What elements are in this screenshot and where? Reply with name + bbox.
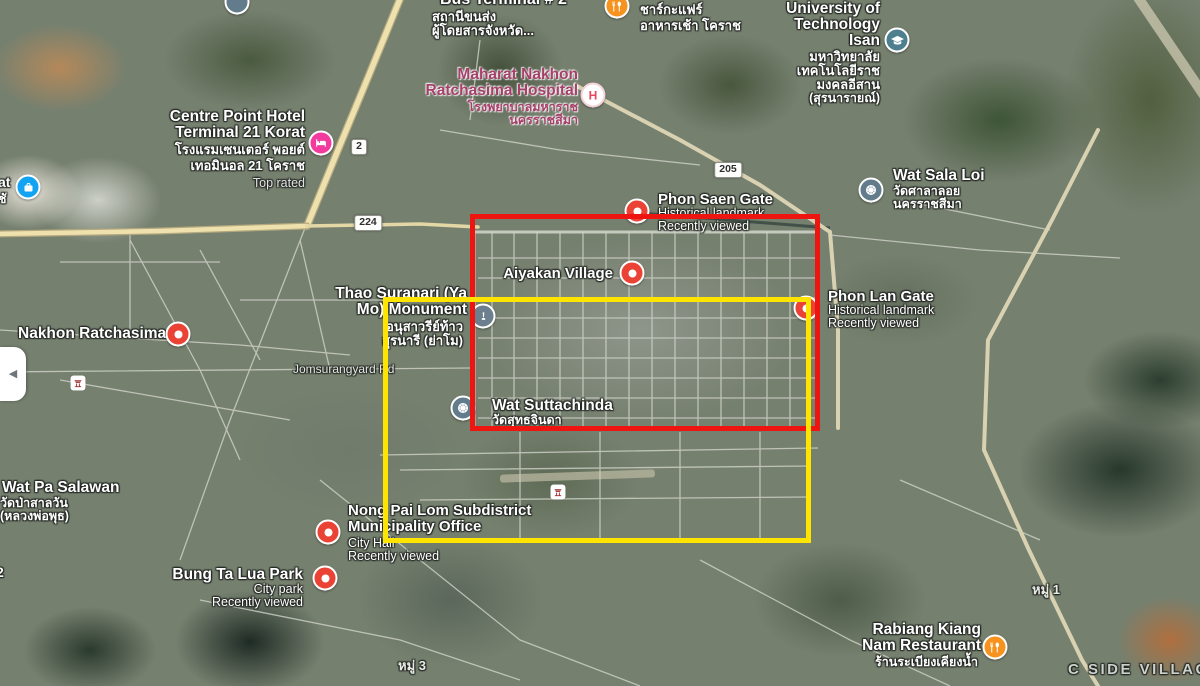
chakafare-thai2: อาหารเช้า โคราช <box>640 19 741 33</box>
university-thai-4: (สุรนารายณ์) <box>809 92 880 106</box>
shrine-icon[interactable] <box>71 376 86 391</box>
restaurant-icon <box>605 0 630 19</box>
university-pin[interactable] <box>885 28 910 53</box>
restaurant-icon <box>983 635 1008 660</box>
edge-fragment-2: 2 <box>0 565 4 580</box>
rabiang-restaurant-pin[interactable] <box>983 635 1008 660</box>
rabiang-label-1: Rabiang Kiang <box>872 621 981 638</box>
wat-sala-loi-pin[interactable] <box>859 178 884 203</box>
wat-pa-salawan-label: Wat Pa Salawan <box>2 479 119 496</box>
nakhon-ratchasima-pin[interactable] <box>166 322 191 347</box>
edge-fragment-at: at <box>0 175 10 190</box>
centre-point-label-1: Centre Point Hotel <box>170 108 305 125</box>
shopping-mall-pin[interactable] <box>16 175 41 200</box>
phon-lan-gate-status: Recently viewed <box>828 317 919 331</box>
bus-terminal-thai2: ผู้โดยสารจังหวัด... <box>432 24 534 38</box>
yellow-annotation-rectangle <box>383 297 811 543</box>
nakhon-ratchasima-label: Nakhon Ratchasima <box>18 325 166 342</box>
maharat-hospital-label-2: Ratchasima Hospital <box>426 82 578 99</box>
saved-place-icon <box>316 520 341 545</box>
centre-point-hotel-pin[interactable] <box>309 131 334 156</box>
maharat-hospital-pin[interactable]: H <box>581 83 606 108</box>
nong-pai-lom-status: Recently viewed <box>348 550 439 564</box>
saved-place-icon <box>313 566 338 591</box>
bus-terminal-pin[interactable] <box>225 0 250 15</box>
route-2-shield: 2 <box>351 139 367 155</box>
university-label-3: Isan <box>849 32 880 49</box>
rabiang-thai: ร้านระเบียงเคียงน้ำ <box>875 656 978 670</box>
centre-point-label-2: Terminal 21 Korat <box>175 124 305 141</box>
wat-sala-loi-thai-2: นครราชสีมา <box>893 198 962 212</box>
chakafare-thai1: ชาร์กะแฟร์ <box>640 3 703 17</box>
route-205-shield: 205 <box>714 162 742 178</box>
hospital-h-icon: H <box>581 83 606 108</box>
university-label-1: University of <box>786 0 880 17</box>
wat-pa-salawan-thai-2: (หลวงพ่อพุธ) <box>0 510 69 524</box>
bus-icon <box>225 0 250 15</box>
bung-ta-lua-label: Bung Ta Lua Park <box>172 566 303 583</box>
graduation-cap-icon <box>885 28 910 53</box>
university-label-2: Technology <box>794 16 880 33</box>
edge-fragment-thai: ชั <box>0 193 6 207</box>
bung-ta-lua-status: Recently viewed <box>212 596 303 610</box>
map-canvas[interactable]: Bus Terminal # 2 สถานีขนส่ง ผู้โดยสารจัง… <box>0 0 1200 686</box>
moo3-label: หมู่ 3 <box>398 659 426 673</box>
centre-point-thai-1: โรงแรมเซนเตอร์ พอยต์ <box>175 143 305 157</box>
chakafare-restaurant-pin[interactable] <box>605 0 630 19</box>
side-panel-toggle[interactable]: ◀ <box>0 347 26 401</box>
rabiang-label-2: Nam Restaurant <box>862 637 981 654</box>
centre-point-top-rated: Top rated <box>253 177 305 191</box>
bung-ta-lua-pin[interactable] <box>313 566 338 591</box>
maharat-hospital-thai-2: นครราชสีมา <box>509 114 578 128</box>
hotel-bed-icon <box>309 131 334 156</box>
bus-terminal-label: Bus Terminal # 2 <box>440 0 567 9</box>
c-side-village-label: C SIDE VILLAGE <box>1068 662 1200 679</box>
dharma-wheel-icon <box>859 178 884 203</box>
maharat-hospital-label-1: Maharat Nakhon <box>457 66 578 83</box>
chevron-left-icon: ◀ <box>9 369 17 380</box>
centre-point-thai-2: เทอมินอล 21 โคราช <box>190 159 305 173</box>
moo1-label: หมู่ 1 <box>1032 583 1060 597</box>
route-224-shield: 224 <box>354 215 382 231</box>
nong-pai-lom-pin[interactable] <box>316 520 341 545</box>
jomsurangyard-road-label: Jomsurangyard Rd <box>293 363 394 376</box>
saved-place-icon <box>166 322 191 347</box>
wat-sala-loi-label: Wat Sala Loi <box>893 167 985 184</box>
shopping-bag-icon <box>16 175 41 200</box>
